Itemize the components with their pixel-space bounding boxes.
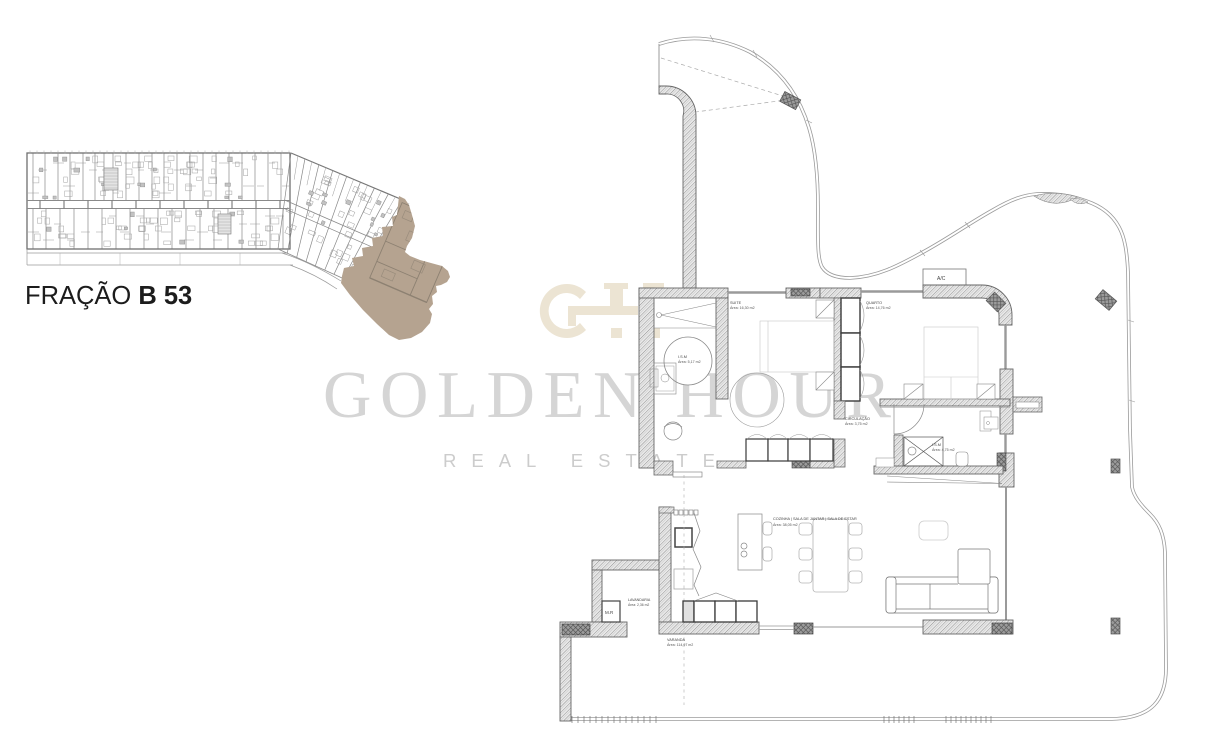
svg-text:GOLDEN HOUR: GOLDEN HOUR [323, 358, 900, 432]
svg-text:COZINHA | SALA DE JANTAR | SAL: COZINHA | SALA DE JANTAR | SALA DE ESTAR [773, 517, 857, 521]
svg-text:I.S.M: I.S.M [678, 355, 687, 359]
svg-text:SUITE: SUITE [730, 301, 742, 305]
svg-text:Área: 3,75 m2: Área: 3,75 m2 [845, 422, 868, 426]
svg-text:Área: 16,30 m2: Área: 16,30 m2 [730, 306, 755, 310]
svg-text:QUARTO: QUARTO [866, 301, 882, 305]
svg-text:M.R: M.R [605, 610, 614, 615]
svg-text:REAL ESTATE: REAL ESTATE [443, 450, 730, 471]
svg-text:FRAÇÃO B 53: FRAÇÃO B 53 [25, 281, 192, 310]
svg-text:I.S.M: I.S.M [932, 443, 941, 447]
svg-text:CIRCULAÇÃO: CIRCULAÇÃO [845, 416, 870, 421]
svg-text:Área: 114,97 m2: Área: 114,97 m2 [667, 643, 693, 647]
svg-text:Área: 2,36 m2: Área: 2,36 m2 [628, 603, 649, 607]
svg-text:Área: 4,75 m2: Área: 4,75 m2 [932, 448, 955, 452]
svg-text:Área: 5,17 m2: Área: 5,17 m2 [678, 360, 701, 364]
svg-text:Área: 38,05 m2: Área: 38,05 m2 [773, 523, 798, 527]
svg-text:LAVANDARIA: LAVANDARIA [628, 598, 651, 602]
svg-text:Área: 14,76 m2: Área: 14,76 m2 [866, 306, 891, 310]
svg-text:A/C: A/C [937, 276, 946, 282]
svg-text:VARANDA: VARANDA [667, 638, 686, 642]
